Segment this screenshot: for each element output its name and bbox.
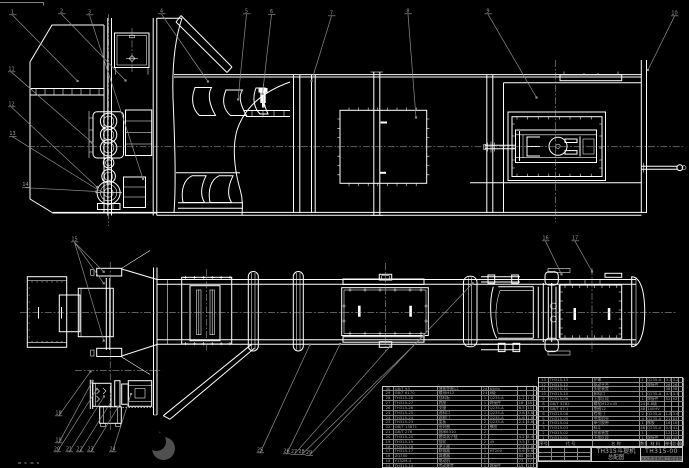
leader-endpoint [647, 69, 649, 71]
bom-cell: TH315-14 [394, 464, 438, 468]
leader-endpoint [89, 370, 91, 372]
drawing-type: 总配图 [592, 456, 640, 461]
leader-endpoint [339, 343, 341, 345]
bom-table-right: 13TH315-13护罩1Q235-A3.23.212TH315-12驱动平台1… [538, 377, 683, 441]
crescent-smudge [147, 432, 175, 460]
leader-line [90, 15, 144, 179]
leader-line [648, 16, 675, 70]
leader-endpoint [91, 380, 93, 382]
leader-line [12, 107, 98, 187]
leader-line [260, 345, 310, 454]
front-view [28, 14, 686, 226]
leader-endpoint [91, 142, 93, 144]
bom-cell: 1 [482, 464, 489, 468]
leader-endpoint [130, 393, 132, 395]
bom-header-cell: 代 号 [549, 441, 593, 446]
leader-endpoint [389, 345, 391, 347]
bom-cell: 14 [383, 464, 394, 468]
leader-line [57, 389, 97, 452]
bom-table-left: 30GB/T 93弹簧垫圈122465Mn29GB/T 6170螺母M12248… [382, 386, 537, 468]
leader-endpoint [310, 80, 312, 82]
cad-drawing-sheet: 1234567891011121314151617181920212223242… [0, 0, 689, 468]
leader-endpoint [472, 282, 474, 284]
leader-endpoint [117, 406, 119, 408]
bom-header-cell: 序号 [539, 441, 549, 446]
leader-line [263, 15, 272, 94]
signature-grid [539, 448, 591, 461]
leader-line [12, 72, 93, 143]
leader-line [75, 242, 104, 283]
leader-endpoint [96, 388, 98, 390]
leader-endpoint [100, 191, 102, 193]
bom-header-cell: 单件 [665, 441, 672, 446]
leader-endpoint [237, 98, 239, 100]
drawing-name-cell: TH315斗提机 总配图 [591, 448, 641, 461]
leader-endpoint [103, 340, 105, 342]
bom-cell: 焊接件 [489, 464, 518, 468]
leader-endpoint [96, 186, 98, 188]
leader-line [162, 14, 209, 81]
title-block: TH315斗提机 总配图 TH315-00 ××大学机械工程学院 [538, 447, 683, 462]
organization-line: ××大学机械工程学院 [641, 456, 682, 461]
leader-endpoint [207, 80, 209, 82]
leader-endpoint [309, 343, 311, 345]
leader-line [294, 347, 390, 455]
bom-cell [534, 464, 539, 468]
leader-line [26, 188, 97, 192]
leader-endpoint [95, 190, 97, 192]
bom-header-row: 序号代 号名 称数量材 料单件总计备注 [538, 440, 683, 447]
leader-endpoint [261, 93, 263, 95]
bom-header-cell: 备注 [679, 441, 685, 446]
drawing-number-cell: TH315-00 ××大学机械工程学院 [641, 448, 682, 461]
leader-endpoint [110, 401, 112, 403]
leader-endpoint [103, 282, 105, 284]
leader-endpoint [591, 270, 593, 272]
leader-endpoint [103, 271, 105, 273]
leader-line [575, 241, 592, 271]
bom-cell: 15 [527, 464, 534, 468]
leader-endpoint [103, 395, 105, 397]
leader-line [91, 407, 119, 452]
bom-header-cell: 材 料 [647, 441, 666, 446]
drawing-number: TH315-00 [641, 448, 682, 456]
leader-line [408, 14, 416, 117]
leader-line [238, 14, 247, 99]
leader-endpoint [415, 116, 417, 118]
leader-line [488, 14, 537, 97]
sheet-border-corner [0, 3, 44, 6]
leader-line [59, 381, 93, 443]
bom-header-cell: 名 称 [593, 441, 640, 446]
bom-row: 14TH315-14传动装置1焊接件1515 [383, 464, 536, 468]
bom-cell: 15 [518, 464, 527, 468]
leader-endpoint [535, 96, 537, 98]
leader-line [287, 344, 341, 454]
leader-line [62, 14, 126, 80]
leader-line [312, 16, 332, 81]
bom-cell: 传动装置 [438, 464, 482, 468]
leader-endpoint [76, 80, 78, 82]
leader-endpoint [124, 79, 126, 81]
leader-endpoint [142, 178, 144, 180]
leader-endpoint [560, 273, 562, 275]
